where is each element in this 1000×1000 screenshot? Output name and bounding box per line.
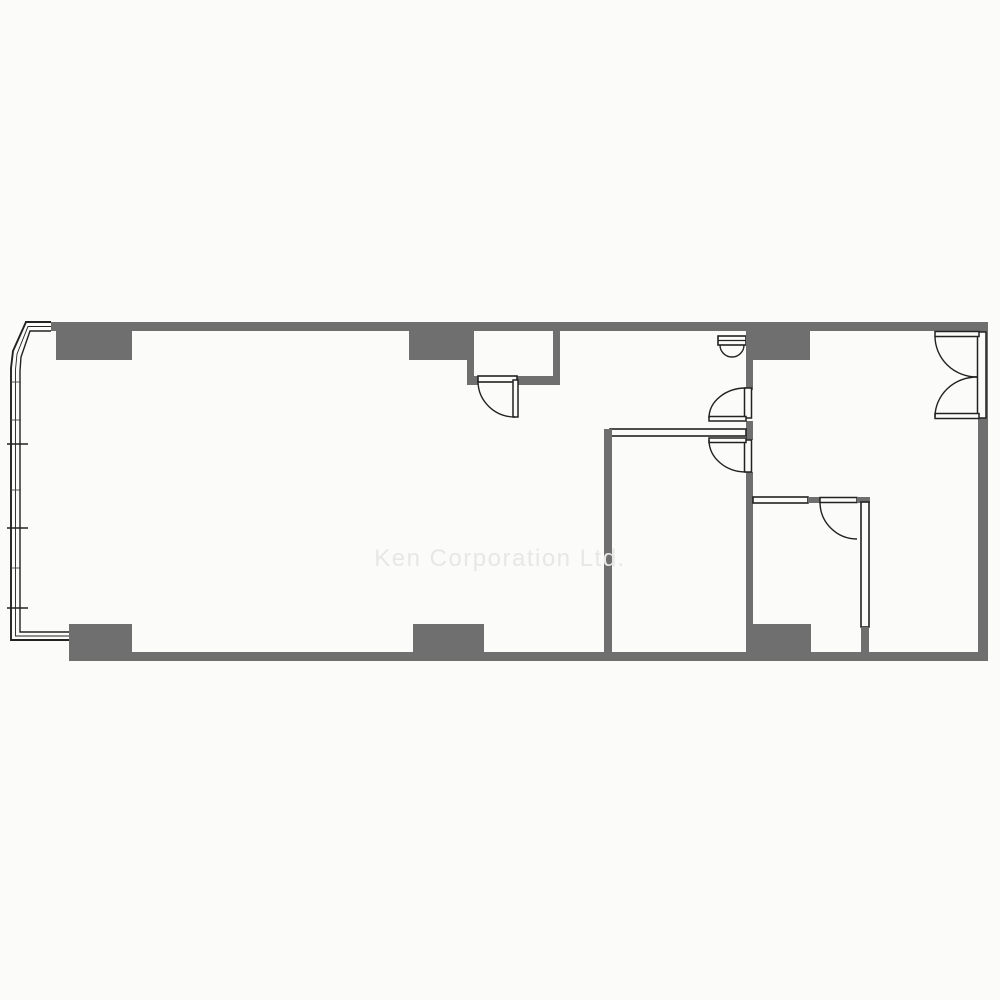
double-entry-door <box>935 332 986 419</box>
column-top-middle <box>409 331 470 360</box>
small-room-door-leaf <box>820 498 857 503</box>
thick-wall-block <box>746 331 810 360</box>
double-door-jamb <box>978 332 987 418</box>
alcove-wall-bottom-right <box>517 376 560 385</box>
meter-box-right-door-arc <box>732 345 744 357</box>
partitions <box>604 429 870 661</box>
small-room-door-swing-arc <box>820 502 857 539</box>
wall-bottom <box>69 652 988 661</box>
alcove-wall-right <box>553 331 560 377</box>
entrance-alcove <box>467 331 560 417</box>
small-room-partition-post <box>808 497 820 503</box>
lower-door-swing-arc <box>709 440 746 472</box>
entrance-door-threshold <box>478 376 517 382</box>
alcove-wall-bottom-left <box>467 376 478 385</box>
core-wall-upper-segment <box>746 360 753 390</box>
small-room-wall-right <box>861 502 869 627</box>
core-wall-middle-segment <box>746 421 753 440</box>
core-wall-lower-segment <box>746 472 753 661</box>
bay-window-wall <box>7 322 69 640</box>
exterior-walls <box>51 322 988 661</box>
meter-box-left-door-arc <box>720 345 732 357</box>
lower-door-closed-leaf <box>745 440 752 472</box>
columns <box>56 331 811 652</box>
watermark-text: Ken Corporation Ltd. <box>374 545 625 572</box>
column-top-left <box>56 331 132 360</box>
double-door-upper-leaf <box>935 332 979 337</box>
meter-box <box>718 336 746 357</box>
upper-door-open-leaf <box>709 417 746 422</box>
upper-door-swing-arc <box>709 388 746 418</box>
entrance-door-leaf <box>513 380 518 417</box>
wall-top <box>51 322 988 331</box>
lower-door-open-leaf <box>709 438 746 443</box>
floor-plan: Ken Corporation Ltd. <box>0 0 1000 1000</box>
hallway-partition <box>610 429 746 436</box>
column-bottom-right <box>749 624 811 652</box>
upper-door-closed-leaf <box>745 388 752 418</box>
small-room-wall-right-stub <box>861 627 869 652</box>
column-bottom-middle <box>413 624 484 652</box>
double-door-lower-leaf <box>935 414 979 419</box>
entrance-door-swing-arc <box>478 381 515 417</box>
floor-plan-canvas: Ken Corporation Ltd. <box>0 0 1000 1000</box>
double-door-upper-swing-arc <box>935 336 977 377</box>
window-inner-line <box>20 331 69 632</box>
column-bottom-left <box>69 624 132 652</box>
small-room-partition-left <box>753 497 808 503</box>
double-door-lower-swing-arc <box>935 377 977 417</box>
window-mid-line <box>16 327 70 637</box>
core-wall <box>709 331 810 661</box>
